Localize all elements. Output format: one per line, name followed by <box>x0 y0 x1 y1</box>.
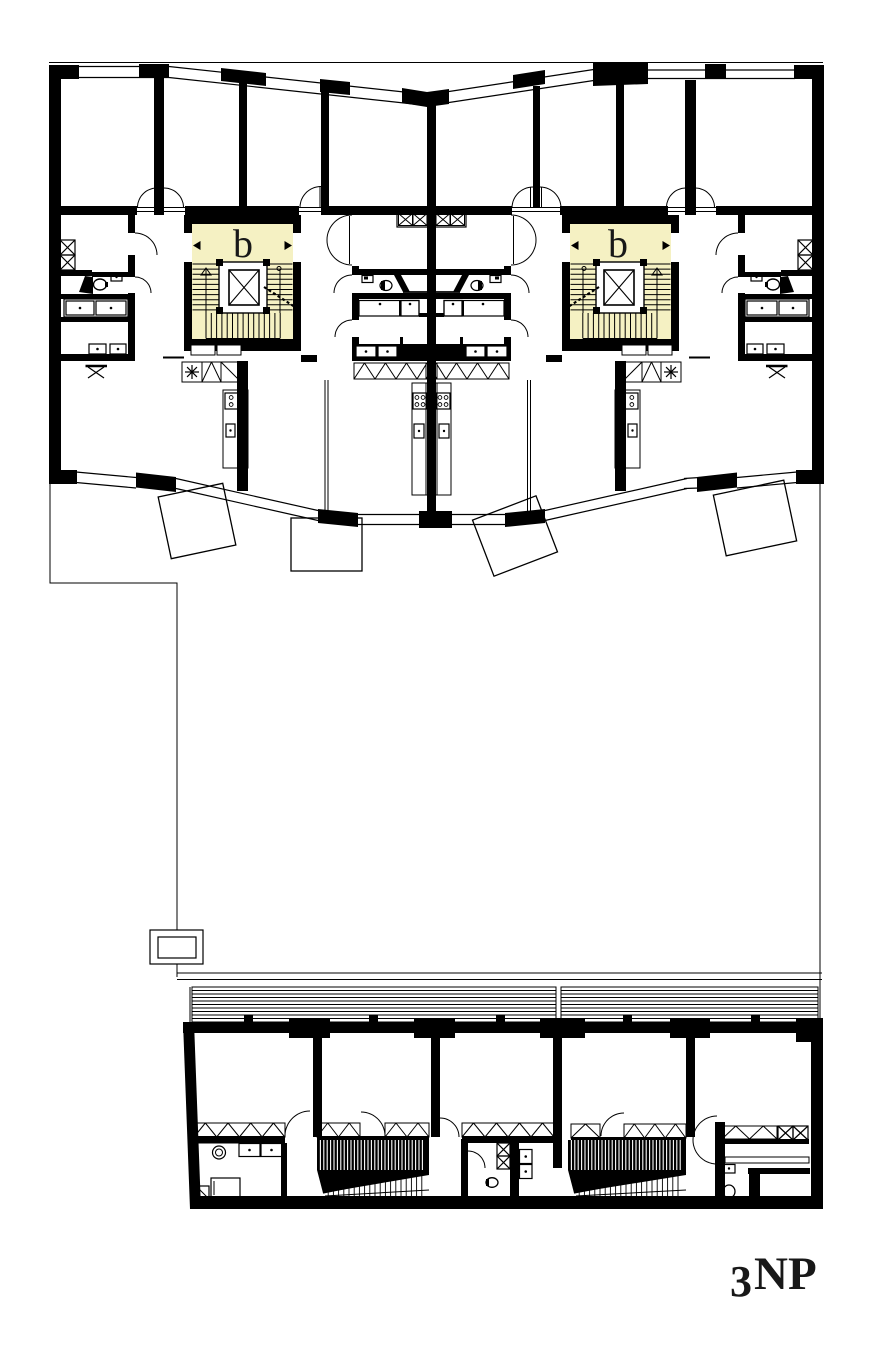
svg-text:3: 3 <box>730 1257 752 1306</box>
svg-text:b: b <box>608 221 628 266</box>
svg-text:NP: NP <box>754 1248 817 1300</box>
svg-text:b: b <box>233 221 253 266</box>
